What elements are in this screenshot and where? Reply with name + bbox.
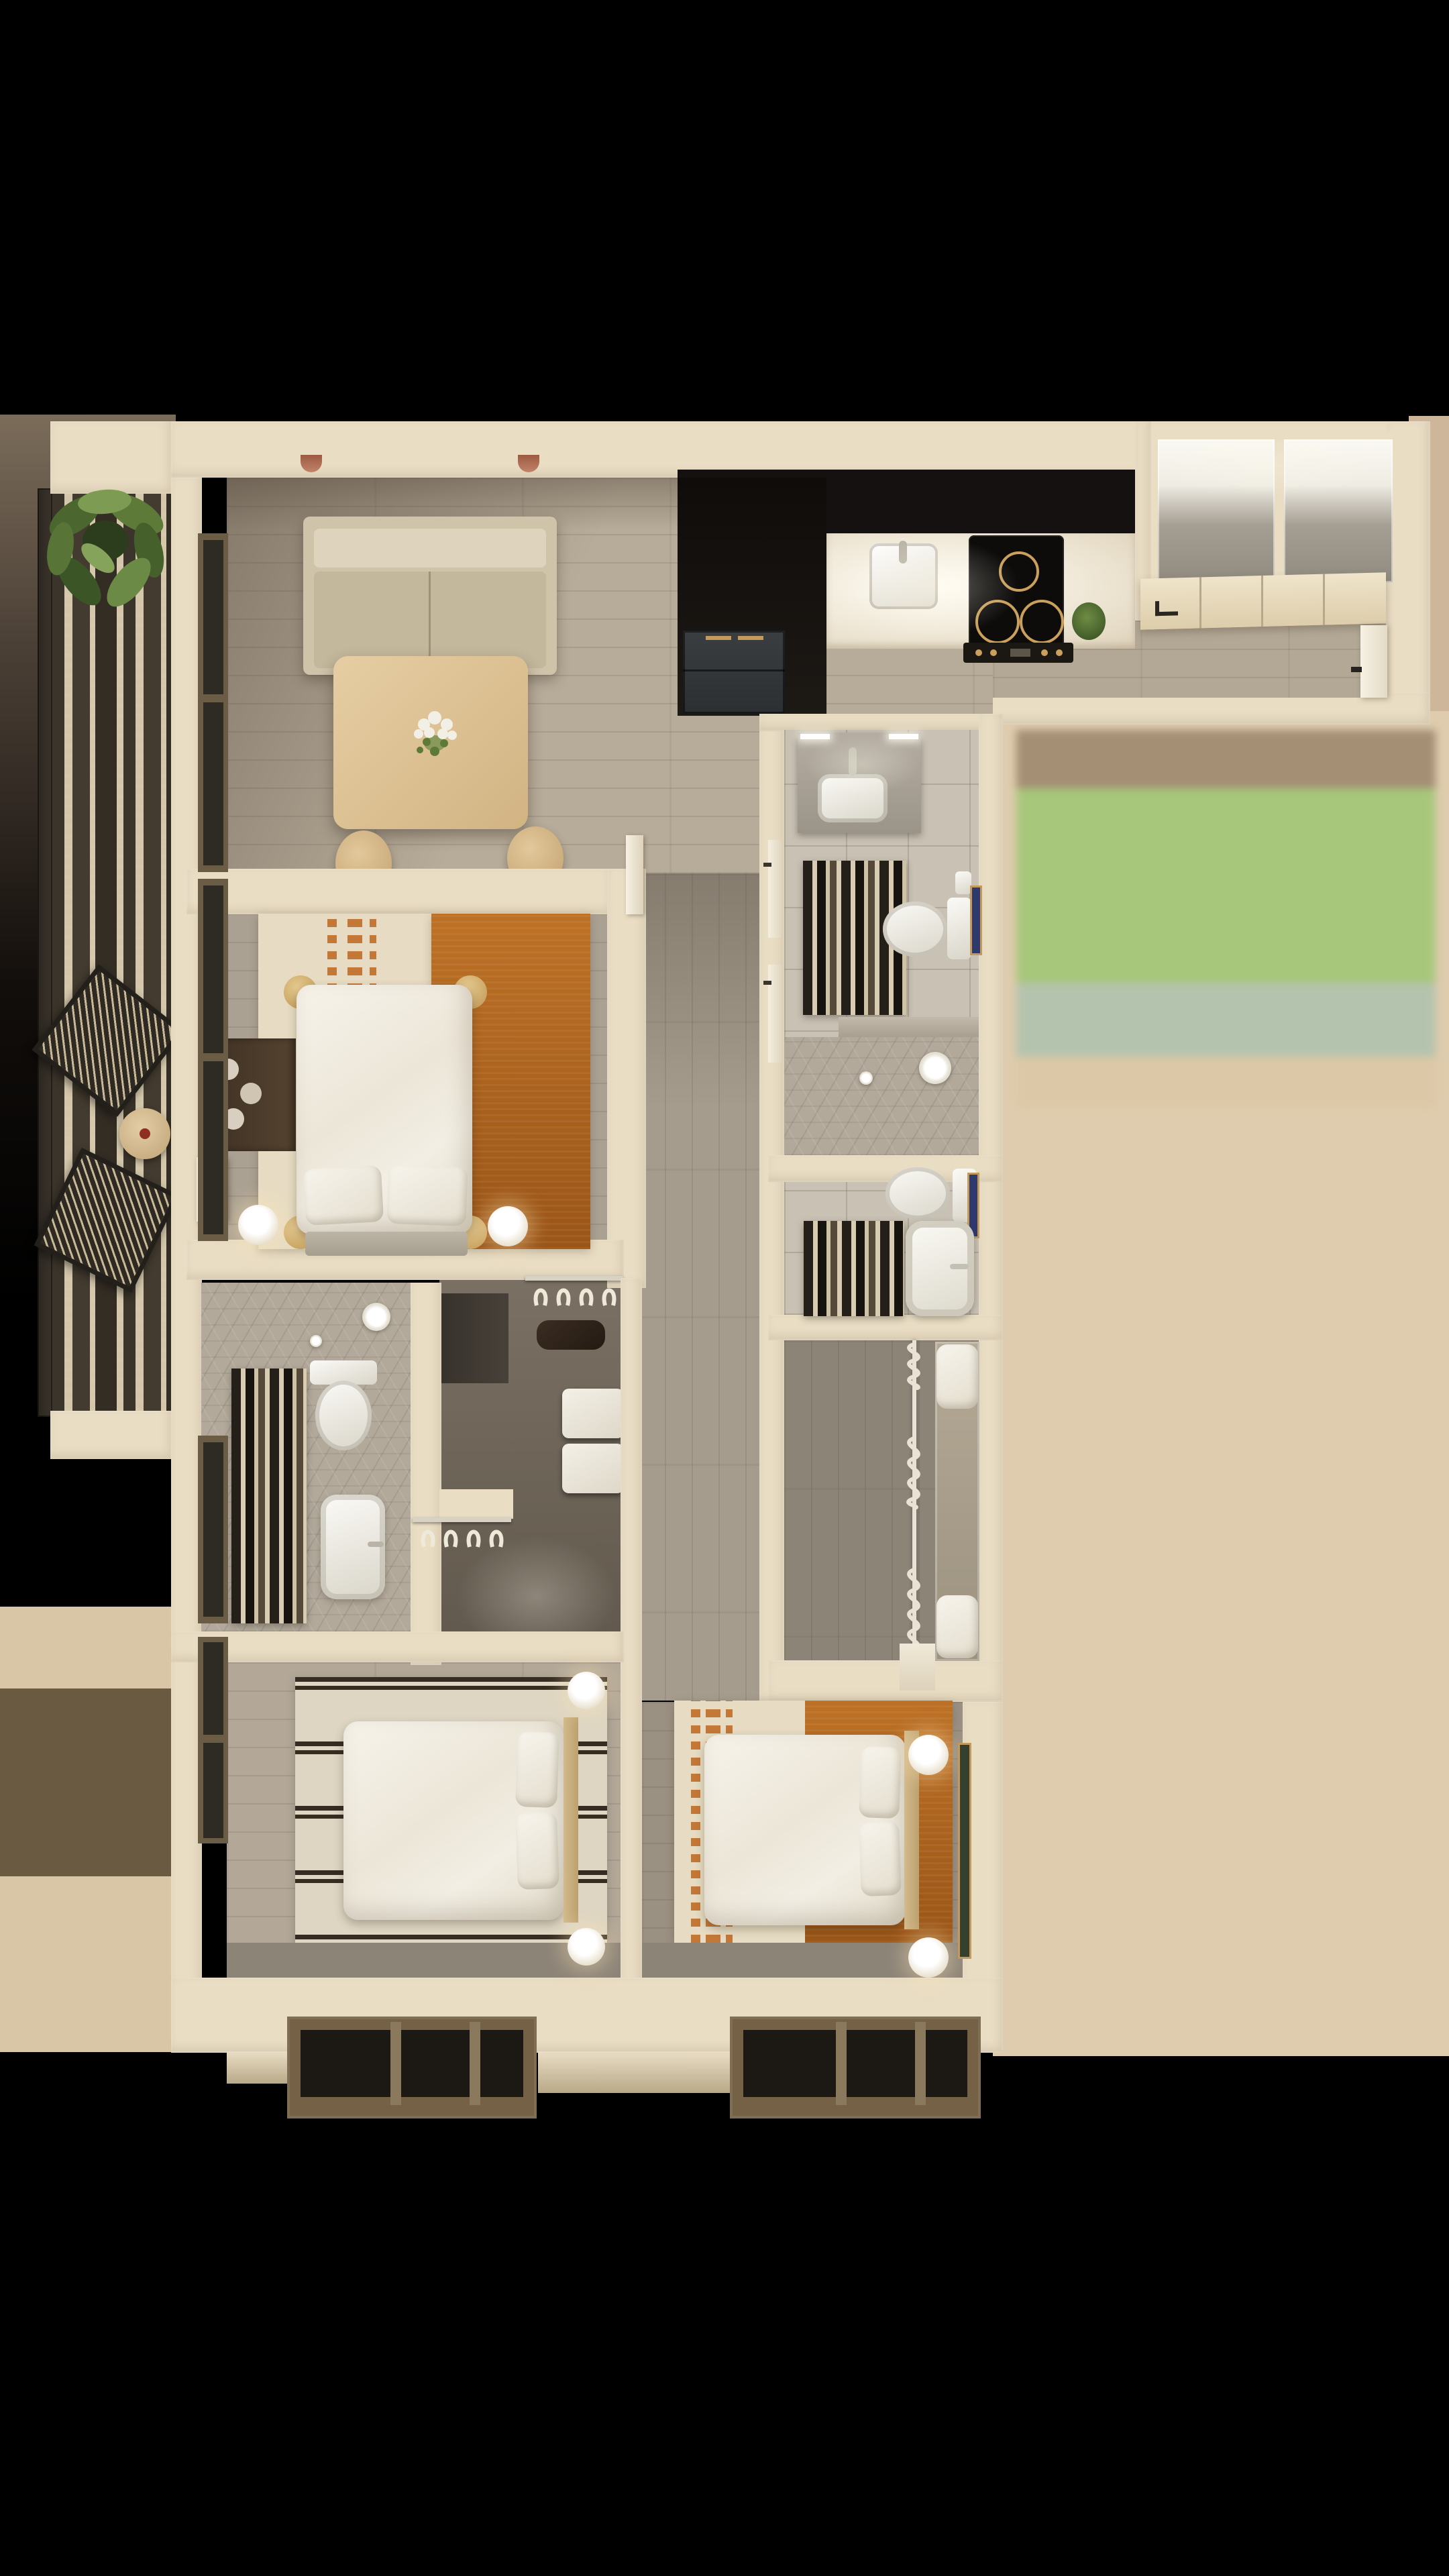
sink-faucet xyxy=(899,541,907,563)
bathA-wall-art xyxy=(970,885,982,955)
window-pane xyxy=(203,1743,223,1838)
window-pane xyxy=(203,702,223,865)
bath-door-handle xyxy=(763,981,771,985)
floor-drain-small xyxy=(859,1071,873,1085)
bedroom1-wall-top xyxy=(186,869,613,914)
background-left-tan-lower xyxy=(0,1876,174,2052)
courtyard-sage-band xyxy=(1016,983,1436,1057)
balcony-side-table xyxy=(119,1108,170,1159)
vanity-led xyxy=(889,734,918,739)
planter-divider xyxy=(915,2022,926,2105)
courtyard-tan-band xyxy=(1016,1057,1436,1107)
courtyard-brown-band xyxy=(1016,730,1436,788)
window-pane xyxy=(203,540,223,694)
wardrobe-desk xyxy=(441,1293,508,1383)
bed2-headboard xyxy=(563,1717,578,1923)
table-decor-red xyxy=(140,1128,150,1139)
window-strip xyxy=(198,1436,228,1623)
vanity-faucet xyxy=(849,747,857,775)
planter-interior xyxy=(743,2030,967,2097)
wardrobe-hangers xyxy=(529,1279,623,1308)
kitchen-sink xyxy=(869,543,938,609)
bedroom1-wall-right xyxy=(607,869,646,1288)
entry-door-handle xyxy=(1351,667,1362,672)
closet-doors xyxy=(1140,572,1386,630)
bed1-pillow xyxy=(387,1165,468,1226)
entry-closet xyxy=(1277,433,1399,589)
counter-plant xyxy=(1072,602,1106,640)
bed3-pillow xyxy=(859,1746,902,1819)
balcony-plant xyxy=(35,470,176,612)
vanity-basin xyxy=(818,774,888,822)
background-left-tan-upper xyxy=(0,1607,174,1694)
vanity-unit xyxy=(798,733,921,833)
basin-faucet xyxy=(368,1542,384,1547)
shoe-spiral-rack xyxy=(898,1342,930,1390)
bed1-bench xyxy=(305,1232,468,1256)
bathA-toilet-tank xyxy=(947,898,971,959)
door-seam xyxy=(1323,574,1325,625)
shower-drain xyxy=(362,1303,390,1331)
burner-ring xyxy=(999,551,1039,592)
mudroom-step xyxy=(900,1644,935,1690)
shoe-spiral-rack xyxy=(898,1436,930,1509)
bathcol-wall-right xyxy=(979,714,1003,1704)
oven-control-strip xyxy=(963,643,1073,663)
bed3-pillow xyxy=(859,1821,902,1896)
planter-divider xyxy=(470,2022,480,2105)
cooktop xyxy=(969,535,1064,647)
burner-ring xyxy=(975,600,1020,644)
storage-box xyxy=(562,1389,624,1438)
nightstand-lamp xyxy=(908,1937,949,1978)
bottom-wall-tab xyxy=(227,2051,290,2084)
nightstand-lamp xyxy=(568,1672,605,1709)
nightstand-lamp xyxy=(238,1205,278,1245)
bedroom3-wall-art xyxy=(958,1743,971,1959)
bench-cushion xyxy=(936,1344,978,1409)
oven-display xyxy=(1010,649,1030,657)
oven-knob xyxy=(1041,649,1048,656)
ensuite-basin xyxy=(321,1495,385,1599)
vanity-led xyxy=(800,734,830,739)
planter-interior xyxy=(301,2030,523,2097)
bottom-wall-tab xyxy=(538,2051,730,2093)
fridge-seam xyxy=(683,669,785,672)
bench-cushion xyxy=(936,1595,978,1658)
storage-box xyxy=(562,1444,624,1493)
entry-door xyxy=(1360,625,1387,698)
bedroom2-floor-strip xyxy=(227,1943,621,1978)
courtyard-grass xyxy=(1016,788,1436,983)
rug-dash-stripe xyxy=(691,1701,700,1943)
window-strip xyxy=(198,879,228,1241)
bathA-toilet-bowl xyxy=(883,902,947,957)
floor-drain-small xyxy=(310,1335,322,1347)
sofa-seam xyxy=(429,572,431,668)
flower-vase xyxy=(393,691,474,778)
window-planter xyxy=(730,2017,981,2118)
mudroom-bottom-wall xyxy=(768,1660,1003,1702)
fridge-handle xyxy=(706,636,731,640)
window-strip xyxy=(198,533,228,872)
bed1-pillow xyxy=(303,1165,384,1226)
bedroom2-bed xyxy=(343,1721,563,1920)
bathB-rug xyxy=(804,1221,904,1316)
sofa xyxy=(303,517,557,675)
nightstand-lamp xyxy=(488,1206,528,1246)
wardrobe-wall-stub xyxy=(439,1489,513,1519)
bath-door xyxy=(768,965,782,1063)
door-seam xyxy=(1261,576,1263,627)
tub-faucet xyxy=(950,1264,969,1269)
bathB-toilet-bowl xyxy=(885,1167,950,1220)
window-pane xyxy=(203,1442,223,1617)
background-left-brown-block xyxy=(0,1688,174,1880)
ensuite-toilet-bowl xyxy=(315,1381,372,1450)
sofa-back-cushion xyxy=(314,529,546,568)
refrigerator xyxy=(683,631,785,714)
bathcol-wall-top xyxy=(759,714,1003,731)
courtyard xyxy=(1016,730,1436,1107)
bed2-pillow xyxy=(515,1812,559,1890)
oven-knob xyxy=(990,649,997,656)
window-planter xyxy=(287,2017,537,2118)
door-handle xyxy=(1155,600,1178,616)
bed2-pillow xyxy=(515,1731,559,1808)
bedroom1-door xyxy=(626,835,643,914)
balcony-railing xyxy=(38,488,52,1417)
console-plate xyxy=(240,1083,262,1104)
burner-ring xyxy=(1020,600,1064,644)
bedroom3-bed xyxy=(704,1735,906,1925)
nightstand-lamp xyxy=(568,1928,605,1966)
bath-door xyxy=(768,840,782,938)
balcony-wall-bottom xyxy=(50,1411,172,1459)
bath-door-handle xyxy=(763,863,771,867)
fridge-handle xyxy=(738,636,763,640)
bathA-shower-floor xyxy=(784,1037,979,1155)
bathtub xyxy=(906,1221,974,1316)
window-pane xyxy=(203,1642,223,1735)
shower-curb xyxy=(839,1017,979,1037)
mudroom-bench xyxy=(935,1342,979,1661)
floor-corridor xyxy=(638,873,768,1701)
oven-knob xyxy=(975,649,982,656)
planter-divider xyxy=(390,2022,401,2105)
window-strip xyxy=(198,1637,228,1843)
wardrobe-bag xyxy=(537,1320,605,1350)
wardrobe-hangers xyxy=(416,1520,510,1550)
ensuite-wall-right xyxy=(411,1283,441,1665)
paper-holder xyxy=(955,871,971,894)
background-right-sliver xyxy=(1430,416,1449,711)
bedroom1-bed xyxy=(297,985,472,1234)
shower-drain xyxy=(919,1052,951,1084)
floor-plan xyxy=(0,0,1449,2576)
window-pane xyxy=(203,1061,223,1234)
bedroom2-wall-top xyxy=(171,1631,624,1662)
bathB-bottom-wall xyxy=(768,1315,1003,1340)
window-pane xyxy=(203,885,223,1053)
planter-divider xyxy=(836,2022,847,2105)
entry-closet xyxy=(1151,433,1281,589)
door-seam xyxy=(1199,577,1201,628)
oven-knob xyxy=(1056,649,1063,656)
ensuite-rug xyxy=(231,1368,307,1623)
nightstand-lamp xyxy=(908,1735,949,1775)
